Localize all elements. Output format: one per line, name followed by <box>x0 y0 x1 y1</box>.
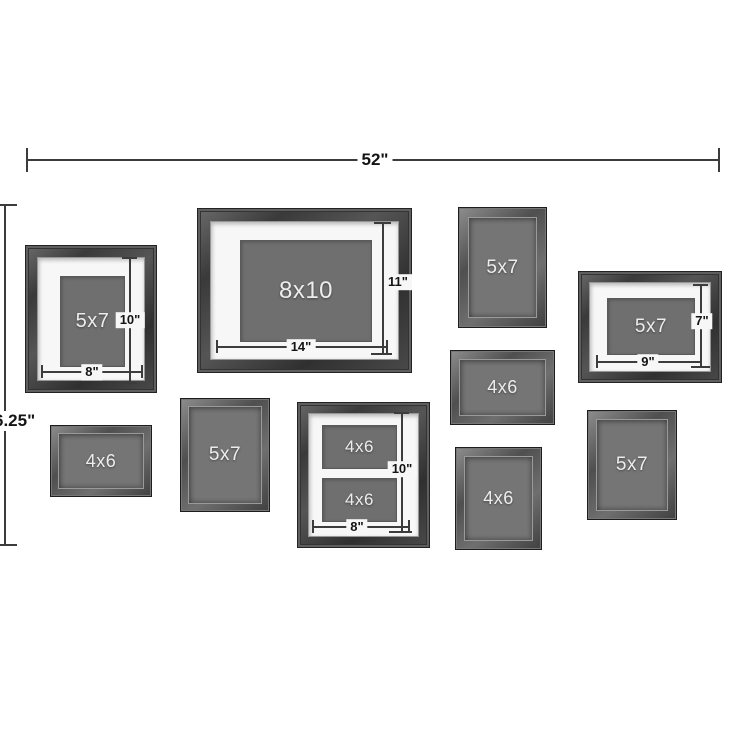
photo-size-label: 5x7 <box>76 310 110 333</box>
frame-simple-4x6-middle: 4x6 <box>450 350 555 425</box>
photo-size-label: 4x6 <box>345 490 374 510</box>
overall-height-label: 6.25" <box>0 411 39 431</box>
dimension-tick <box>0 204 17 206</box>
dimension-tick <box>312 520 314 533</box>
dimension-line <box>4 205 6 545</box>
frame1-height-dim-label: 10" <box>116 312 145 328</box>
frame2-height-dim-label: 11" <box>384 274 412 290</box>
frame4-width-dim-label: 9" <box>637 354 658 370</box>
frame-simple-4x6-portrait-bottom: 4x6 <box>455 447 542 550</box>
photo-size-label: 8x10 <box>279 277 333 305</box>
frame8-width-dim-label: 8" <box>346 519 367 535</box>
frame-simple-4x6-bottom-left: 4x6 <box>50 425 152 497</box>
photo-area: 4x6 <box>460 360 545 415</box>
photo-size-label: 4x6 <box>345 437 374 457</box>
frame8-height-dim-label: 10" <box>388 461 417 477</box>
photo-area: 4x6 <box>59 434 143 488</box>
dimension-tick <box>408 520 410 533</box>
dimension-tick <box>0 544 17 546</box>
dimension-tick <box>394 412 409 414</box>
dimension-tick <box>386 340 388 353</box>
dimension-tick <box>700 355 702 368</box>
frame-simple-5x7-top-right: 5x7 <box>458 207 547 328</box>
photo-area: 5x7 <box>189 407 261 503</box>
photo-size-label: 4x6 <box>86 451 117 472</box>
dimension-tick <box>596 355 598 368</box>
dimension-tick <box>216 340 218 353</box>
photo-area: 5x7 <box>469 218 536 317</box>
photo-size-label: 4x6 <box>483 488 514 509</box>
dimension-tick <box>693 284 708 286</box>
frame-simple-5x7-bottom-center-left: 5x7 <box>180 398 270 512</box>
dimension-tick <box>371 353 392 355</box>
photo-opening-bottom: 4x6 <box>323 479 396 521</box>
photo-area: 4x6 <box>465 457 532 540</box>
photo-opening: 8x10 <box>241 241 371 341</box>
photo-size-label: 5x7 <box>635 316 667 338</box>
photo-area: 5x7 <box>597 420 667 510</box>
dimension-tick <box>141 365 143 378</box>
dimension-tick <box>41 365 43 378</box>
frame1-width-dim-label: 8" <box>81 364 102 380</box>
photo-opening-top: 4x6 <box>323 426 396 468</box>
frame2-width-dim-label: 14" <box>287 339 316 355</box>
frame4-height-dim-label: 7" <box>691 313 712 329</box>
photo-size-label: 4x6 <box>487 377 518 398</box>
overall-width-label: 52" <box>358 150 393 170</box>
photo-size-label: 5x7 <box>616 454 648 476</box>
dimension-tick <box>122 382 137 384</box>
frame-simple-5x7-bottom-right: 5x7 <box>587 410 677 520</box>
photo-size-label: 5x7 <box>486 257 518 279</box>
gallery-wall-diagram: 52" 6.25" 5x7 10" 8" 8x10 11" <box>0 0 750 750</box>
dimension-tick <box>122 257 137 259</box>
photo-size-label: 5x7 <box>209 444 241 466</box>
photo-opening: 5x7 <box>608 299 694 354</box>
photo-opening: 5x7 <box>61 277 124 366</box>
dimension-tick <box>374 222 391 224</box>
